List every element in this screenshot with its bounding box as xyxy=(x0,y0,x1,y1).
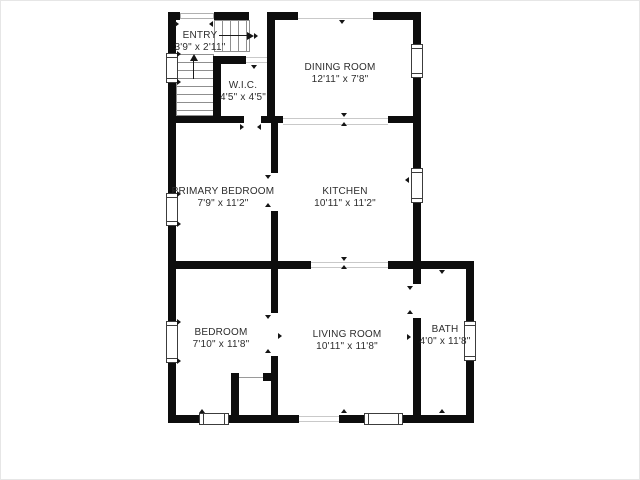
room-name: PRIMARY BEDROOM xyxy=(172,186,275,198)
opening-tick xyxy=(407,310,413,314)
opening-tick xyxy=(341,409,347,413)
window-living-bottom xyxy=(364,413,403,425)
wall-wic-right xyxy=(267,12,275,123)
opening-line xyxy=(298,18,373,19)
room-dimensions: 12'11" x 7'8" xyxy=(304,74,375,86)
wall-bath-left-upper xyxy=(413,269,421,284)
room-dimensions: 4'0" x 11'8" xyxy=(420,336,471,348)
wall-bedroom-living-b xyxy=(271,356,278,415)
room-dimensions: 7'9" x 11'2" xyxy=(172,198,275,210)
opening-tick xyxy=(407,334,411,340)
wall-closet-left xyxy=(231,373,239,415)
opening-tick xyxy=(439,270,445,274)
stair-arrow-right-icon xyxy=(247,32,254,40)
floor-plan: ENTRY 3'9" x 2'11" W.I.C. 4'5" x 4'5" DI… xyxy=(0,0,640,480)
opening-tick xyxy=(257,124,261,130)
opening-tick xyxy=(175,21,179,27)
opening-tick xyxy=(407,286,413,290)
wall-mid-lower-a xyxy=(168,261,311,269)
opening-line xyxy=(311,262,388,263)
room-label-bath: BATH 4'0" x 11'8" xyxy=(420,324,471,348)
opening-tick xyxy=(254,33,258,39)
room-dimensions: 4'5" x 4'5" xyxy=(220,92,266,104)
room-dimensions: 10'11" x 11'8" xyxy=(313,341,382,353)
room-dimensions: 10'11" x 11'2" xyxy=(314,198,376,210)
room-label-kitchen: KITCHEN 10'11" x 11'2" xyxy=(314,186,376,210)
room-name: BATH xyxy=(420,324,471,336)
opening-tick xyxy=(265,349,271,353)
opening-tick xyxy=(177,358,181,364)
window-kitchen-right xyxy=(411,168,423,203)
opening-tick xyxy=(240,124,244,130)
opening-tick xyxy=(278,333,282,339)
room-label-primary: PRIMARY BEDROOM 7'9" x 11'2" xyxy=(172,186,275,210)
opening-tick xyxy=(209,21,213,27)
opening-tick xyxy=(341,265,347,269)
opening-tick xyxy=(199,409,205,413)
opening-line xyxy=(246,62,267,63)
staircase-lower-run xyxy=(176,54,214,116)
room-name: KITCHEN xyxy=(314,186,376,198)
stair-arrow-up-shaft xyxy=(193,61,194,79)
opening-tick xyxy=(177,221,181,227)
opening-line xyxy=(246,57,267,58)
opening-line xyxy=(311,267,388,268)
closet-door-line xyxy=(239,377,263,378)
window-dining-right xyxy=(411,44,423,78)
window-bedroom-left xyxy=(166,321,178,363)
room-name: BEDROOM xyxy=(193,327,250,339)
room-dimensions: 7'10" x 11'8" xyxy=(193,339,250,351)
wall-exterior-top-a xyxy=(168,12,180,20)
opening-line xyxy=(283,124,388,125)
wall-exterior-top-b xyxy=(214,12,249,20)
wall-bedroom-living-a xyxy=(271,269,278,313)
room-name: ENTRY xyxy=(175,30,226,42)
opening-tick xyxy=(251,65,257,69)
opening-tick xyxy=(177,79,181,85)
stair-arrow-up-icon xyxy=(190,54,198,61)
window-bedroom-bottom xyxy=(199,413,229,425)
room-name: DINING ROOM xyxy=(304,62,375,74)
room-dimensions: 3'9" x 2'11" xyxy=(175,42,226,54)
wall-exterior-bottom-b xyxy=(339,415,473,423)
wall-closet-stub xyxy=(263,373,271,381)
entry-door xyxy=(180,13,214,19)
opening-line xyxy=(299,416,339,417)
opening-tick xyxy=(341,122,347,126)
opening-tick xyxy=(265,315,271,319)
room-label-dining: DINING ROOM 12'11" x 7'8" xyxy=(304,62,375,86)
wall-primary-kitchen-b xyxy=(271,211,278,261)
wall-mid-upper-c xyxy=(388,116,413,123)
opening-tick xyxy=(341,113,347,117)
wall-exterior-bottom-a xyxy=(168,415,299,423)
opening-tick xyxy=(439,409,445,413)
opening-tick xyxy=(341,257,347,261)
wall-primary-kitchen-a xyxy=(271,123,278,173)
opening-line xyxy=(283,118,388,119)
room-name: W.I.C. xyxy=(220,80,266,92)
room-label-wic: W.I.C. 4'5" x 4'5" xyxy=(220,80,266,104)
opening-tick xyxy=(405,177,409,183)
wall-wic-top xyxy=(213,56,246,64)
room-label-bedroom: BEDROOM 7'10" x 11'8" xyxy=(193,327,250,351)
room-label-living: LIVING ROOM 10'11" x 11'8" xyxy=(313,329,382,353)
room-name: LIVING ROOM xyxy=(313,329,382,341)
opening-line xyxy=(299,421,339,422)
wall-mid-lower-b xyxy=(388,261,473,269)
opening-tick xyxy=(339,20,345,24)
room-label-entry: ENTRY 3'9" x 2'11" xyxy=(175,30,226,54)
opening-tick xyxy=(177,319,181,325)
wall-mid-upper-a xyxy=(168,116,244,123)
opening-tick xyxy=(265,175,271,179)
